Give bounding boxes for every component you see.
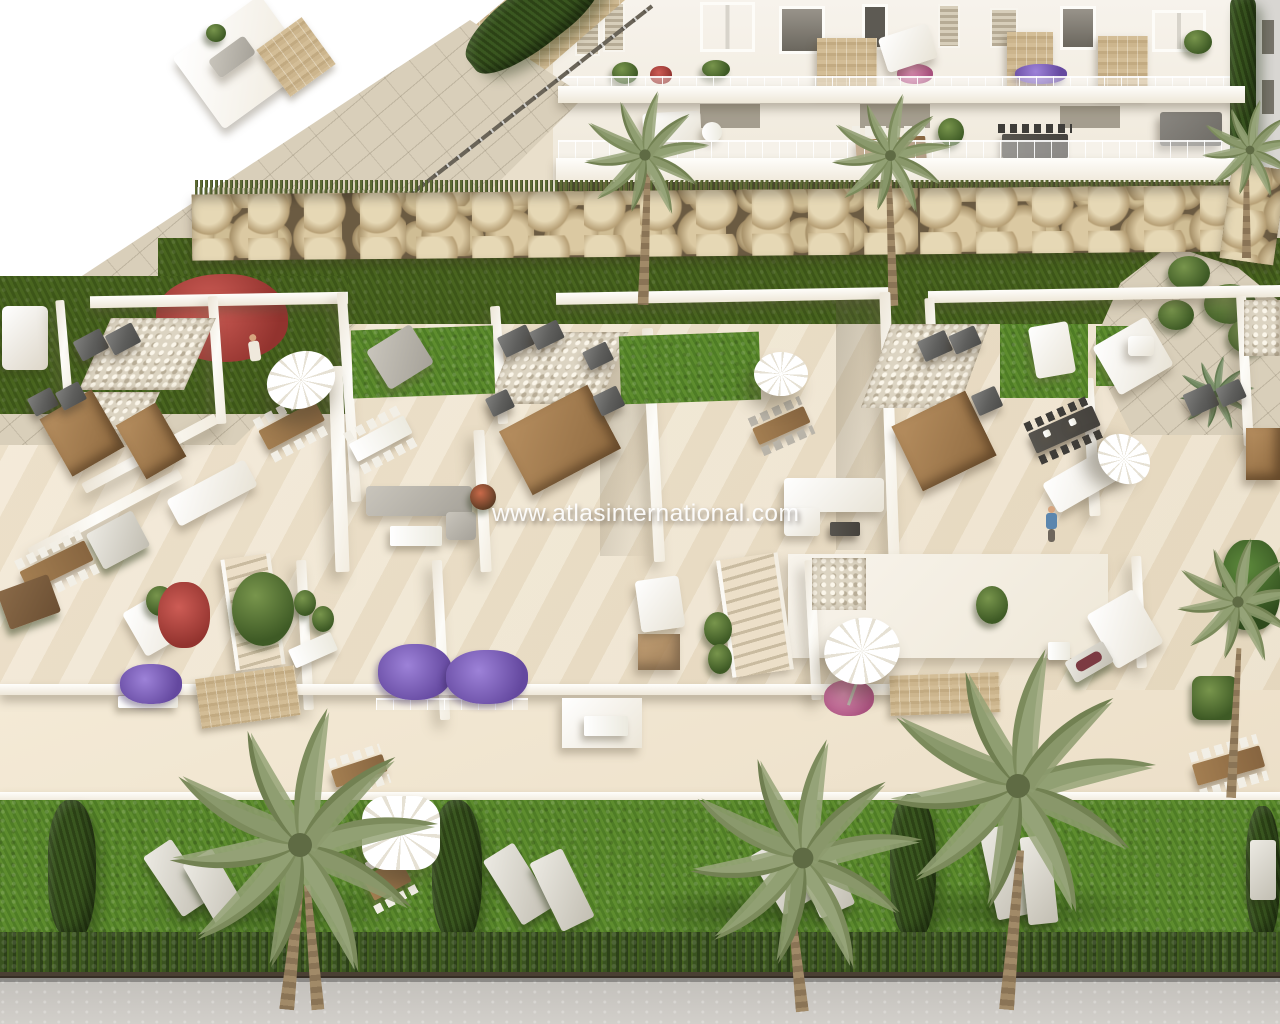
coffee-table (830, 522, 860, 536)
palm-tree (560, 85, 730, 225)
palm-tree (120, 695, 480, 995)
outdoor-sofa (446, 512, 476, 540)
sun-lounger (1250, 840, 1276, 900)
lounge-set (784, 478, 904, 558)
dining-chairs (998, 124, 1072, 133)
person-torso (1046, 513, 1057, 529)
potted-tree (232, 572, 294, 646)
potted-plant (708, 644, 732, 674)
planter-hedge (1192, 676, 1238, 720)
gravel-roof (1244, 300, 1280, 356)
shrub (1158, 300, 1194, 330)
shrub (1168, 256, 1210, 290)
potted-plant (312, 606, 334, 632)
palm-tree (1185, 95, 1280, 205)
palm-tree (1168, 532, 1280, 672)
person-torso (248, 340, 262, 361)
lavender-planter (378, 644, 452, 700)
garden-table-set (2, 306, 48, 370)
parasol (754, 352, 808, 396)
palm-tree (808, 88, 973, 223)
terrace-plant (206, 24, 226, 42)
rooftop-lawn (619, 332, 761, 405)
coffee-table (390, 526, 442, 546)
flowering-bush (158, 582, 210, 648)
wood-deck (638, 634, 680, 670)
person-head (1048, 506, 1055, 513)
outdoor-sofa (635, 575, 686, 633)
roof-plant (976, 586, 1008, 624)
shower-niche (1246, 428, 1280, 480)
cypress-hedge (48, 800, 96, 940)
kitchen-island (584, 716, 628, 736)
render-canvas: www.atlasinternational.com (0, 0, 1280, 1024)
louvered-shutter (938, 4, 960, 48)
gravel-roof (812, 558, 866, 610)
watermark: www.atlasinternational.com (492, 500, 799, 528)
person-standing (1044, 506, 1060, 544)
window (1060, 6, 1096, 50)
potted-plant (704, 612, 732, 646)
window (1262, 20, 1274, 54)
palm-tree (868, 636, 1168, 936)
terrace-plant (1184, 30, 1212, 54)
window (700, 2, 755, 52)
person-legs (1048, 529, 1055, 542)
garden-chair (1128, 336, 1154, 356)
